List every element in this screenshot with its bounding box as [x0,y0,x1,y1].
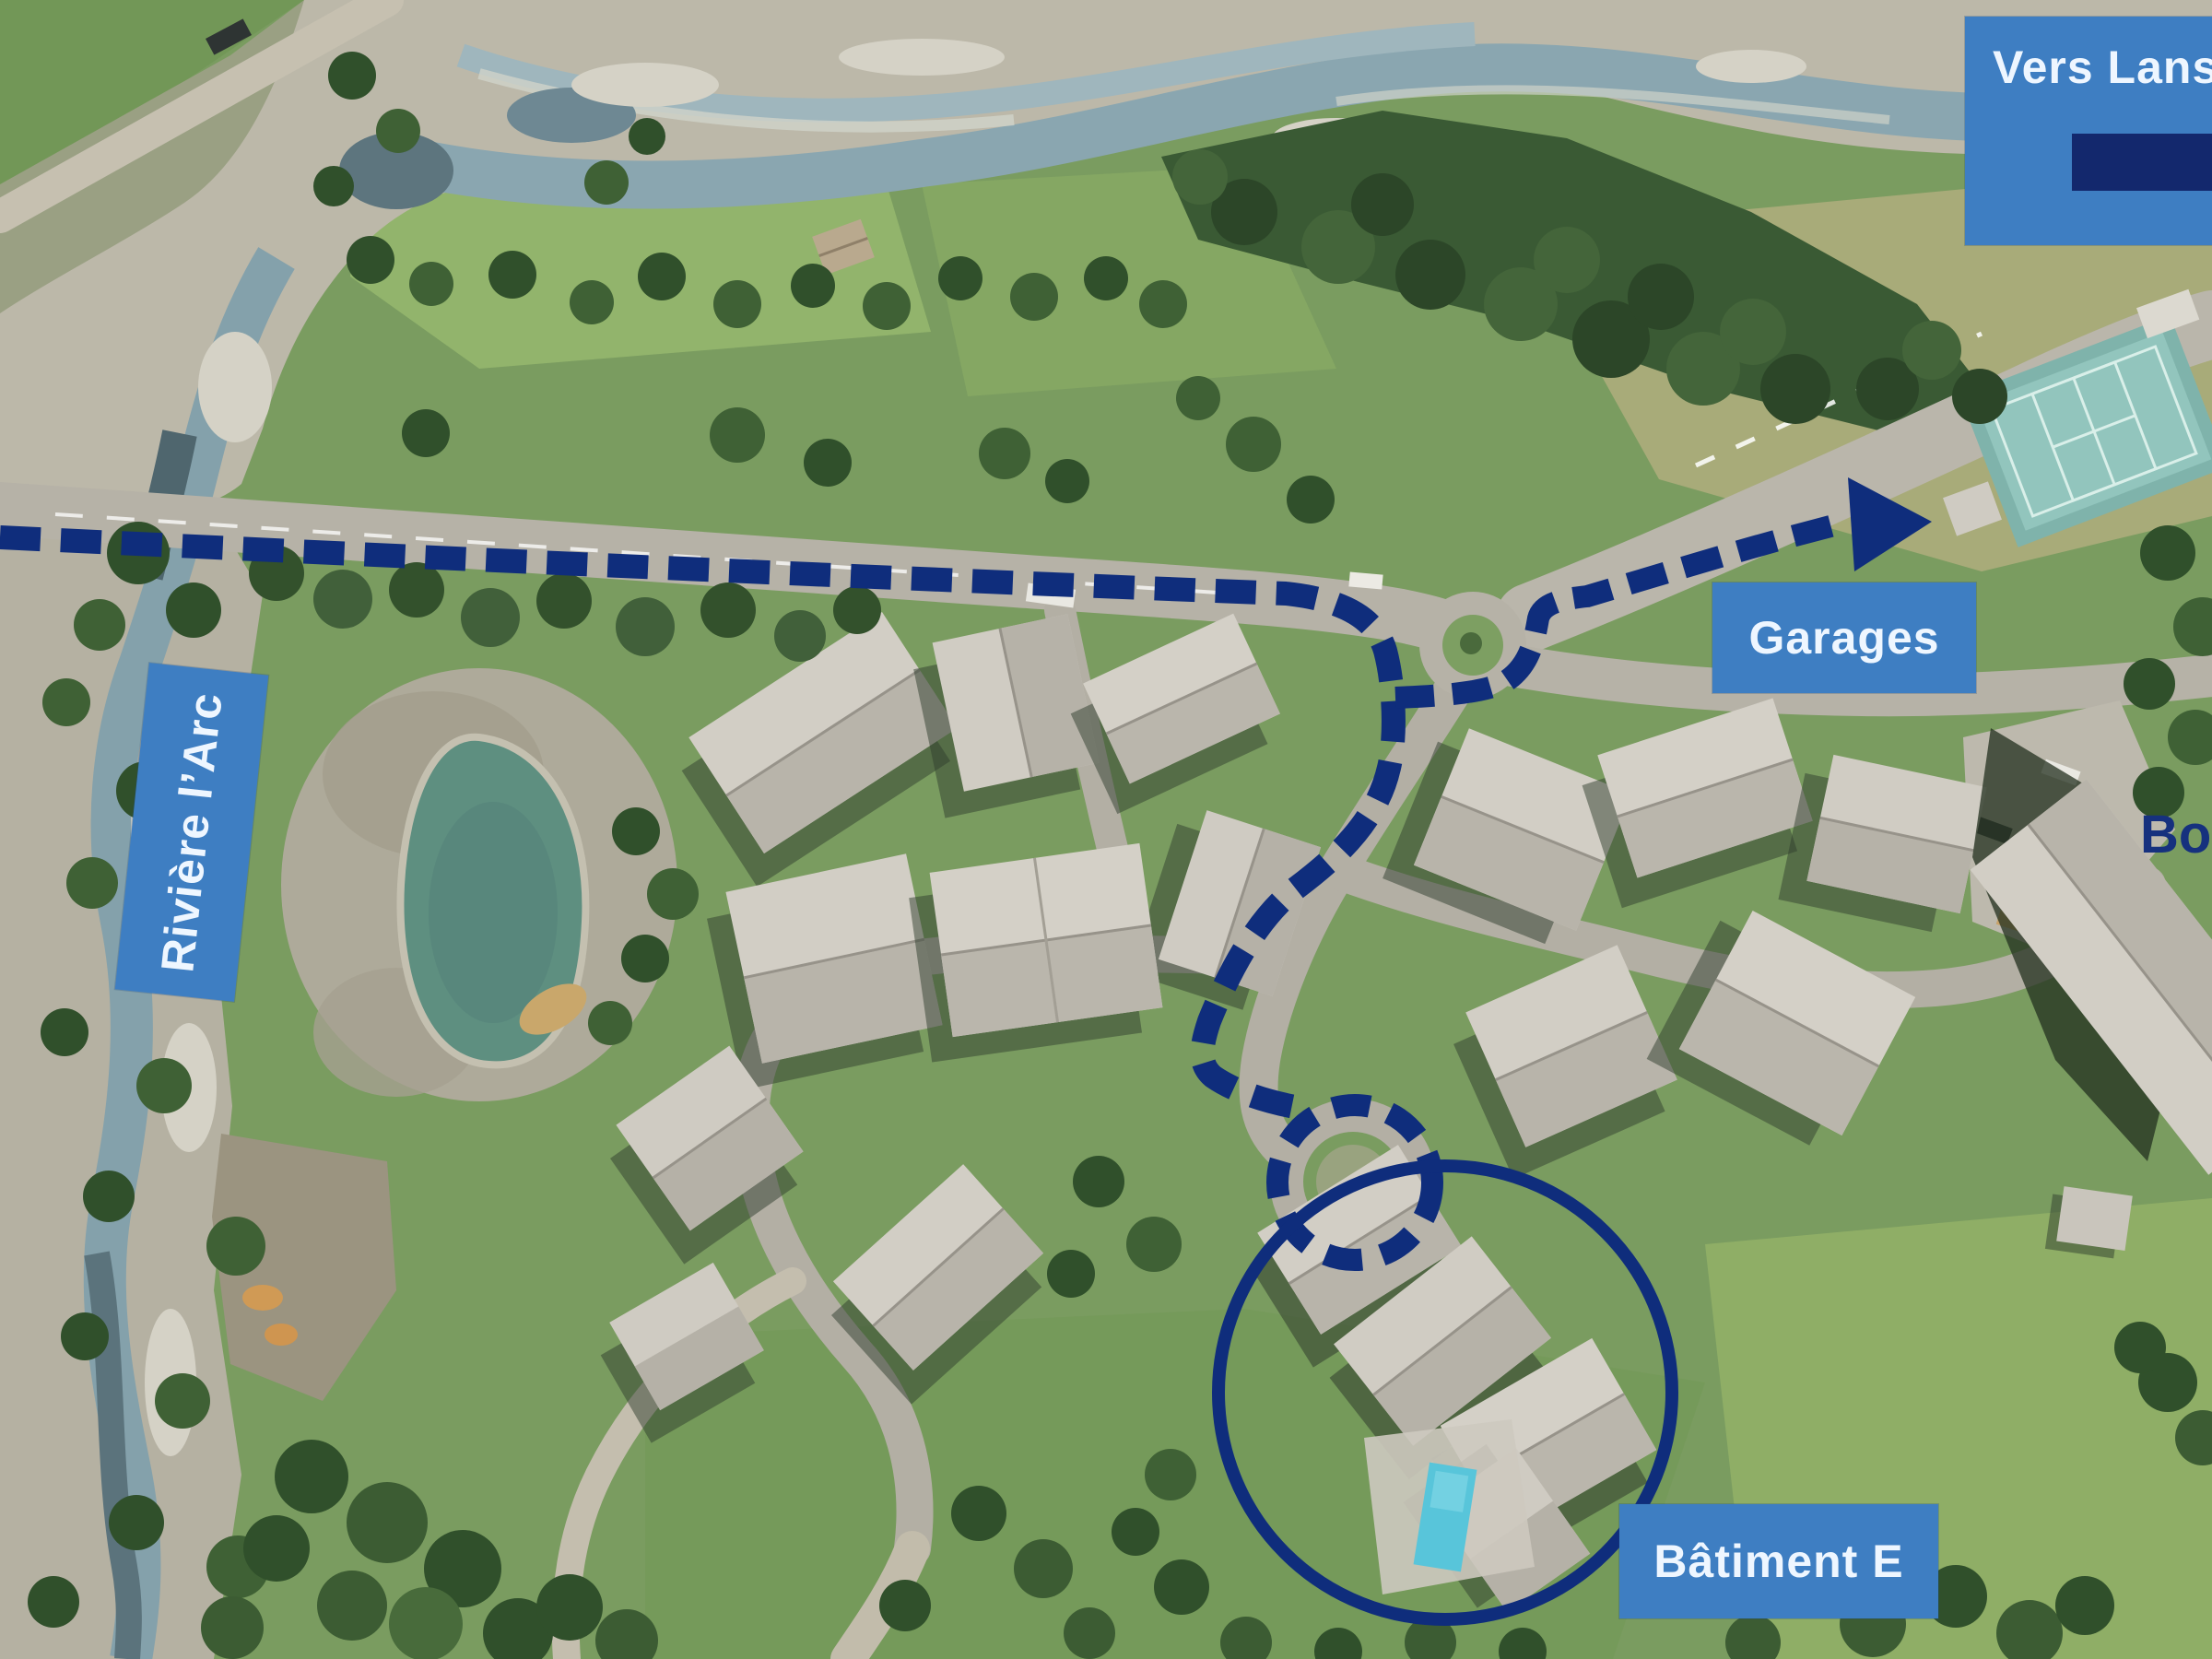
shed-roof [2045,1185,2133,1260]
label-garages: Garages [1712,582,1976,693]
label-partial-right-text: Bou [2140,805,2212,865]
legend-color-bar [2072,134,2212,191]
label-destination-text: Vers Lansl [1993,41,2212,94]
label-destination: Vers Lansl [1965,17,2212,245]
label-river-text: Rivière l’Arc [150,689,233,974]
label-batiment-e: Bâtiment E [1619,1504,1938,1618]
label-batiment-e-text: Bâtiment E [1653,1535,1903,1588]
label-partial-right: Bou [2140,804,2212,865]
aerial-photo [0,0,2212,1659]
building-roof [906,843,1166,1063]
annotated-aerial-map: Vers Lansl Garages Rivière l’Arc Bâtimen… [0,0,2212,1659]
label-garages-text: Garages [1748,611,1939,665]
